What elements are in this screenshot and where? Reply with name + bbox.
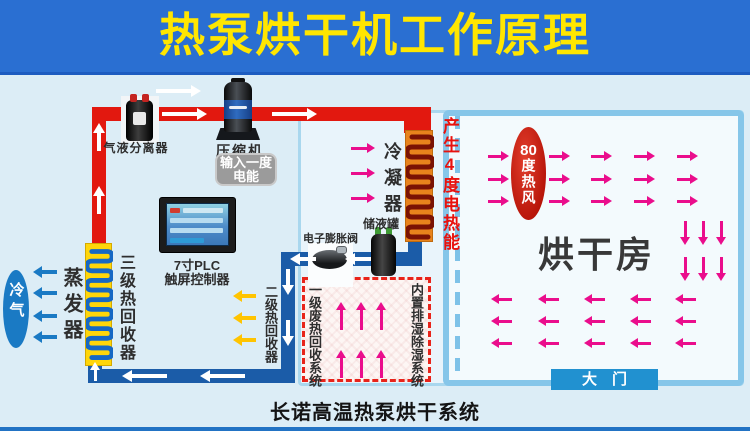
diagram-canvas: 热泵烘干机工作原理 — [0, 0, 750, 431]
liquid-left-arrow — [345, 253, 371, 265]
waste-heat-up-arrow — [356, 302, 366, 330]
stage2-recovery-arrow — [233, 334, 256, 346]
liquid-pipe-bottom — [88, 369, 295, 383]
waste-heat-up-arrow — [336, 302, 346, 330]
bottom-border-bar — [0, 427, 750, 431]
separator-sticker — [133, 112, 146, 125]
hot-wind-left-arrow — [538, 294, 559, 304]
condenser-label: 冷凝器 — [379, 142, 405, 220]
liquid-left-arrow — [290, 253, 316, 265]
hot-wind-down-arrow — [698, 221, 708, 245]
hot-wind-down-arrow — [680, 257, 690, 281]
hot-wind-right-arrow — [677, 174, 698, 184]
hot-wind-left-arrow — [630, 294, 651, 304]
hot-wind-right-arrow — [591, 196, 612, 206]
drying-room-title: 烘干房 — [538, 226, 738, 278]
hot-wind-label: 度热风 — [519, 158, 539, 206]
condenser-heat-arrow — [351, 193, 375, 203]
liquid-receiver-tank — [371, 234, 396, 276]
cold-air-arrow — [33, 310, 57, 322]
hot-wind-left-arrow — [630, 338, 651, 348]
hot-wind-left-arrow — [584, 316, 605, 326]
condenser-coil — [406, 131, 434, 243]
plc-screen — [166, 203, 229, 246]
condenser-heat-arrow — [351, 143, 375, 153]
hot-wind-left-arrow — [491, 316, 512, 326]
hot-wind-oval: 80 度热风 — [511, 127, 546, 220]
return-left-arrow — [200, 370, 245, 382]
hot-gas-arrow — [162, 108, 207, 120]
hot-gas-arrow — [272, 108, 317, 120]
hot-wind-right-arrow — [591, 151, 612, 161]
cold-air-arrow — [33, 287, 57, 299]
hot-wind-right-arrow — [549, 196, 570, 206]
cold-air-arrow — [33, 266, 57, 278]
hot-wind-down-arrow — [716, 257, 726, 281]
hot-wind-temp: 80 — [511, 142, 546, 159]
evaporator-coil — [86, 244, 113, 367]
stage2-recovery-arrow — [233, 312, 256, 324]
hot-wind-down-arrow — [716, 221, 726, 245]
hot-wind-right-arrow — [591, 174, 612, 184]
evap-in-up-arrow — [90, 362, 100, 381]
hot-wind-right-arrow — [677, 151, 698, 161]
hot-gas-up-arrow — [93, 123, 105, 151]
hot-wind-right-arrow — [549, 151, 570, 161]
hot-wind-left-arrow — [584, 294, 605, 304]
separator-label: 气液分离器 — [100, 139, 172, 156]
hot-wind-left-arrow — [675, 338, 696, 348]
separator-port-icon — [130, 94, 137, 102]
waste-heat-up-arrow — [336, 350, 346, 378]
waste-heat-up-arrow — [376, 350, 386, 378]
plc-label-line2: 触屏控制器 — [157, 269, 237, 288]
door-label: 大 门 — [551, 369, 658, 390]
expansion-valve-label: 电子膨胀阀 — [303, 230, 358, 246]
hot-wind-left-arrow — [538, 338, 559, 348]
hot-wind-right-arrow — [549, 174, 570, 184]
power-input-badge: 输入一度电能 — [215, 153, 277, 186]
cold-air-label: 冷气 — [6, 282, 27, 322]
cold-air-oval: 冷气 — [3, 270, 29, 348]
hot-wind-left-arrow — [630, 316, 651, 326]
stage3-recovery-label: 三级热回收器 — [113, 254, 137, 362]
hot-wind-right-arrow — [634, 196, 655, 206]
caption: 长诺高温热泵烘干系统 — [0, 396, 750, 425]
stage2-recovery-label: 二级热回收器 — [261, 285, 280, 363]
liquid-down-arrow — [282, 320, 294, 346]
dehumidify-system-label: 内置排湿除湿系统 — [407, 283, 426, 387]
liquid-down-arrow — [282, 269, 294, 295]
return-left-arrow — [122, 370, 167, 382]
hot-wind-right-arrow — [634, 174, 655, 184]
hot-gas-up-arrow — [93, 186, 105, 214]
evaporator-label: 蒸发器 — [57, 267, 86, 345]
cold-air-arrow — [33, 331, 57, 343]
hot-wind-left-arrow — [491, 338, 512, 348]
condenser-heat-arrow — [351, 168, 375, 178]
waste-heat-up-arrow — [376, 302, 386, 330]
receiver-label: 储液罐 — [357, 215, 405, 232]
heat-gain-label: 产生4度电热能 — [437, 117, 462, 252]
hot-wind-left-arrow — [538, 316, 559, 326]
evaporator-coil-box — [85, 243, 112, 366]
stage2-recovery-arrow — [233, 290, 256, 302]
hot-wind-right-arrow — [488, 196, 509, 206]
hot-wind-right-arrow — [488, 151, 509, 161]
hot-wind-down-arrow — [698, 257, 708, 281]
hot-gas-arrow — [156, 85, 201, 97]
hot-wind-right-arrow — [677, 196, 698, 206]
hot-wind-left-arrow — [584, 338, 605, 348]
stage1-waste-recovery-label: 一级废热回收系统 — [305, 283, 324, 387]
hot-wind-right-arrow — [634, 151, 655, 161]
hot-wind-left-arrow — [491, 294, 512, 304]
condenser-coil-box — [405, 130, 433, 242]
hot-wind-right-arrow — [488, 174, 509, 184]
page-title: 热泵烘干机工作原理 — [0, 0, 750, 70]
compressor-label-band — [224, 100, 252, 119]
hot-wind-left-arrow — [675, 294, 696, 304]
separator-port-icon — [142, 94, 149, 102]
hot-wind-left-arrow — [675, 316, 696, 326]
waste-heat-up-arrow — [356, 350, 366, 378]
hot-wind-down-arrow — [680, 221, 690, 245]
title-bar: 热泵烘干机工作原理 — [0, 0, 750, 75]
